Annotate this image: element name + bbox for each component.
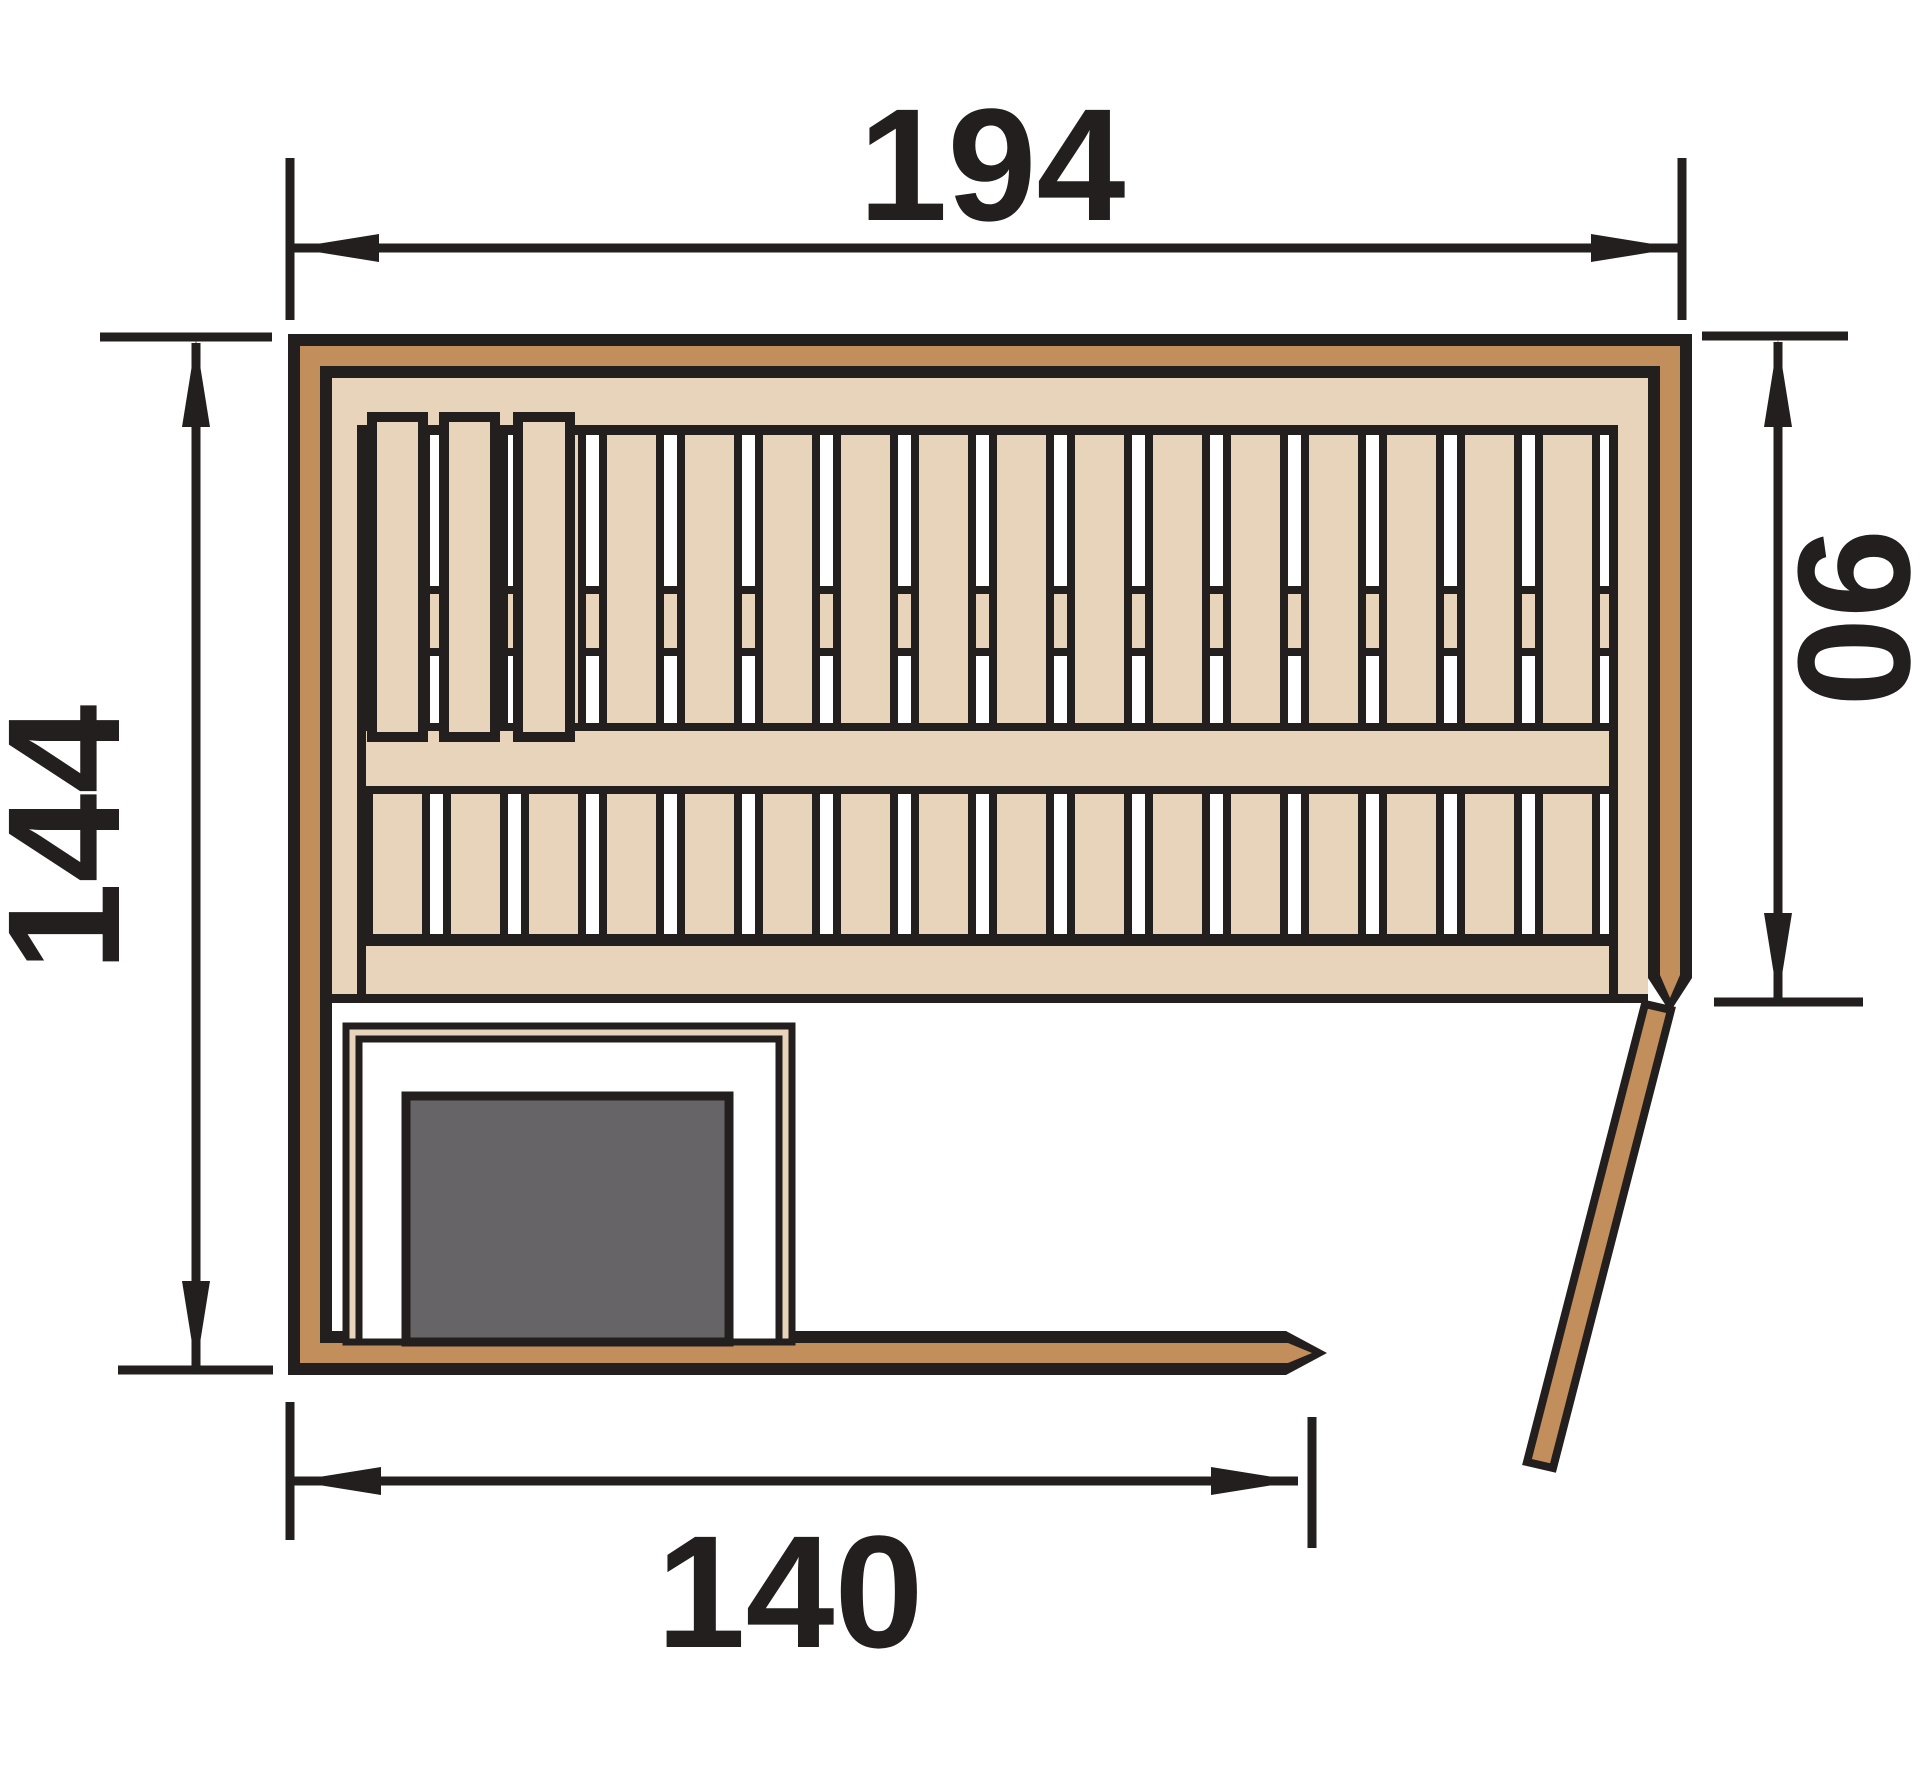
wall-left-core bbox=[300, 346, 320, 1363]
arrowhead-left bbox=[294, 1467, 381, 1495]
mid-band-front-line bbox=[365, 786, 1613, 794]
wall-top-core bbox=[300, 346, 1680, 366]
arrowhead-down bbox=[1764, 913, 1792, 1000]
heater bbox=[406, 1096, 729, 1342]
dimension-bottom: 140 bbox=[290, 1402, 1312, 1681]
bench-front-edge-line bbox=[332, 994, 1648, 1003]
sauna-plan-drawing: 194 144 90 140 bbox=[0, 0, 1922, 1772]
lower-slats-front-line bbox=[365, 934, 1613, 946]
lower-bench-slats bbox=[365, 794, 1613, 934]
arrowhead-down bbox=[182, 1281, 210, 1368]
sauna-plan-page: 194 144 90 140 bbox=[0, 0, 1922, 1772]
wall-right-core bbox=[1660, 346, 1680, 998]
bench-right-band-edge bbox=[1609, 425, 1618, 1003]
arrowhead-up bbox=[182, 340, 210, 427]
dimension-left: 144 bbox=[0, 337, 273, 1370]
arrowhead-right bbox=[1591, 234, 1678, 262]
dim-label-door-wall: 90 bbox=[1765, 529, 1922, 707]
bench bbox=[332, 378, 1648, 1003]
arrowhead-left bbox=[292, 234, 379, 262]
arrowhead-right bbox=[1211, 1467, 1298, 1495]
bench-left-band-edge bbox=[357, 425, 366, 1003]
dim-label-depth: 144 bbox=[0, 705, 153, 972]
backrest-plank-2 bbox=[444, 417, 495, 737]
door-leaf bbox=[1527, 1004, 1671, 1468]
dim-label-front-wall: 140 bbox=[657, 1502, 924, 1681]
backrest-plank-1 bbox=[372, 417, 423, 737]
arrowhead-up bbox=[1764, 340, 1792, 427]
heater-assembly bbox=[346, 1026, 792, 1342]
dimension-top: 194 bbox=[290, 75, 1682, 320]
dim-label-width: 194 bbox=[859, 75, 1126, 254]
backrest-plank-3 bbox=[518, 417, 570, 737]
dimension-right: 90 bbox=[1702, 336, 1922, 1002]
